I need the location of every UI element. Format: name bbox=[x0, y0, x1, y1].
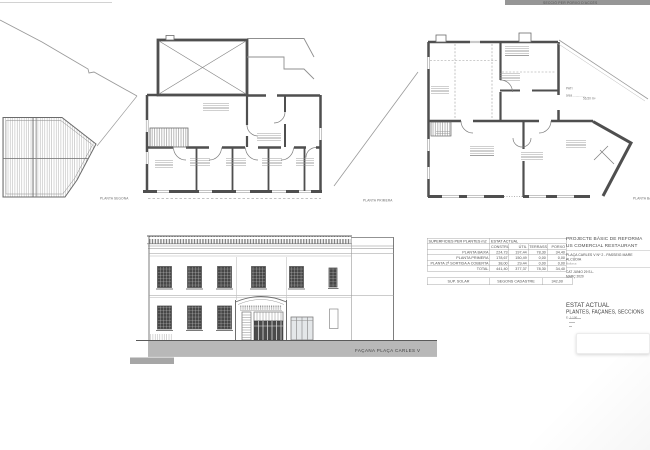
divider bbox=[566, 268, 650, 269]
client-line: CAT JUNIO 29 S.L. bbox=[566, 271, 650, 275]
annotation-text bbox=[155, 160, 173, 168]
annotation-text bbox=[521, 152, 543, 161]
solar-source: SEGONS CADASTRE bbox=[490, 278, 543, 285]
region-line: Mallorca bbox=[566, 263, 650, 266]
annotation-text bbox=[203, 103, 229, 112]
annotation-text bbox=[257, 133, 281, 142]
drawing-sheet: SECCIÓ PER PORXO D'ACCÉS bbox=[0, 0, 650, 450]
city-line: ALCÚDIA bbox=[566, 258, 650, 262]
surfaces-table: SUPERFICIES PER PLANTES m2 ESTAT ACTUAL … bbox=[427, 238, 567, 285]
pati-area-value: 56,50 m² bbox=[583, 97, 595, 100]
sheet-title-line1: ESTAT ACTUAL bbox=[566, 302, 650, 309]
planta-segona-label: PLANTA SEGONA bbox=[100, 197, 129, 200]
title-block: PROJECTE BÀSIC DE REFORMA US COMERCIAL R… bbox=[566, 236, 650, 320]
annotation-text bbox=[470, 146, 494, 156]
table-row-total: TOTAL 441,40 377,37 78,30 34,40 bbox=[427, 266, 566, 272]
divider bbox=[566, 251, 650, 252]
solar-surface-row: SUP. SOLAR SEGONS CADASTRE 342,00 bbox=[427, 278, 573, 286]
date-line: MARÇ 2020 bbox=[566, 275, 650, 279]
annotation-text bbox=[505, 46, 529, 56]
facade-label: FAÇANA PLAÇA CARLES V bbox=[355, 348, 420, 353]
annotation-text bbox=[500, 73, 520, 81]
project-title-line2: US COMERCIAL RESTAURANT bbox=[566, 243, 650, 249]
sheet-title-line2: PLANTES, FAÇANES, SECCIONS bbox=[566, 310, 650, 316]
roof-plan bbox=[0, 20, 137, 197]
annotation-text bbox=[431, 86, 449, 94]
annotation-text bbox=[296, 158, 314, 166]
address-line: PLAÇA CARLES V Nº 2 - PASSEIG MARE bbox=[566, 254, 650, 258]
handwritten-mark bbox=[569, 318, 581, 319]
col-header: TERRASSA bbox=[528, 244, 547, 250]
corner-shading bbox=[530, 350, 650, 450]
handwritten-mark bbox=[569, 322, 575, 323]
first-floor-plan bbox=[143, 36, 418, 199]
pati-label: PATI bbox=[566, 87, 573, 90]
project-title-line1: PROJECTE BÀSIC DE REFORMA bbox=[566, 236, 650, 242]
annotation-text bbox=[190, 158, 210, 167]
annotation-text bbox=[436, 131, 450, 137]
handwritten-mark bbox=[569, 326, 572, 327]
planta-baixa-label: PLANTA BAIXA bbox=[633, 197, 650, 200]
annotation-text bbox=[226, 158, 246, 167]
facade-elevation bbox=[130, 236, 437, 364]
ground-floor-plan bbox=[428, 33, 648, 197]
col-header: CONSTRUIDA bbox=[490, 244, 509, 250]
annotation-text bbox=[262, 158, 282, 167]
table-title: SUPERFICIES PER PLANTES m2 bbox=[427, 238, 490, 244]
solar-label: SUP. SOLAR bbox=[427, 278, 490, 285]
planta-primera-label: PLANTA PRIMERA bbox=[363, 199, 393, 202]
annotation-text bbox=[566, 140, 586, 149]
